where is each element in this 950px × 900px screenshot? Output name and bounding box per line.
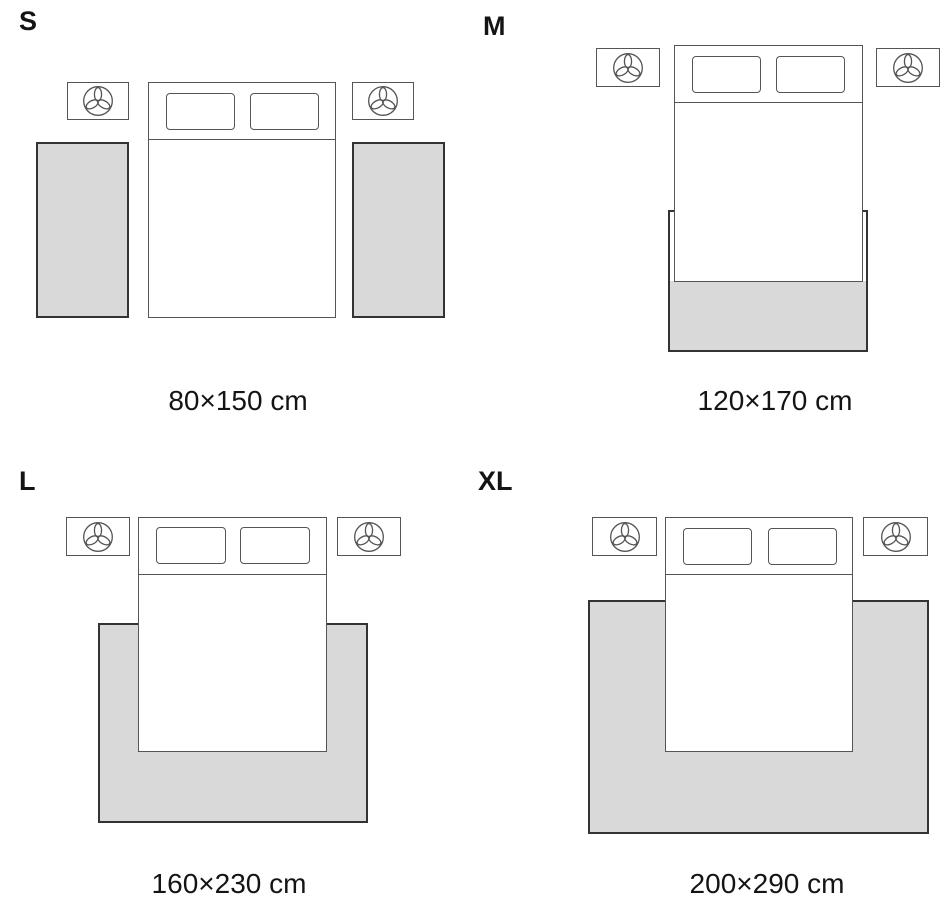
rug-left-runner xyxy=(36,142,129,318)
panel-size-l: L xyxy=(0,450,475,900)
plant-icon xyxy=(353,521,385,553)
dimension-label: 160×230 cm xyxy=(152,869,307,900)
headboard-line xyxy=(138,574,327,575)
size-letter: L xyxy=(19,468,36,495)
dimension-label: 200×290 cm xyxy=(690,869,845,900)
pillow-left xyxy=(156,527,226,564)
bed xyxy=(148,82,336,318)
size-letter: M xyxy=(483,13,506,40)
plant-icon xyxy=(82,521,114,553)
headboard-line xyxy=(148,139,336,140)
plant-icon xyxy=(367,85,399,117)
nightstand-right xyxy=(876,48,940,87)
rug-size-guide: S xyxy=(0,0,950,900)
plant-icon xyxy=(892,52,924,84)
nightstand-left xyxy=(596,48,660,87)
bed xyxy=(665,517,853,752)
nightstand-left xyxy=(67,82,129,120)
rug-right-runner xyxy=(352,142,445,318)
nightstand-left xyxy=(592,517,657,556)
pillow-right xyxy=(250,93,319,130)
plant-icon xyxy=(82,85,114,117)
headboard-line xyxy=(665,574,853,575)
panel-size-m: M xyxy=(475,0,950,450)
size-letter: S xyxy=(19,8,37,35)
panel-size-s: S xyxy=(0,0,475,450)
pillow-right xyxy=(768,528,837,565)
plant-icon xyxy=(609,521,641,553)
pillow-right xyxy=(776,56,845,93)
plant-icon xyxy=(612,52,644,84)
nightstand-right xyxy=(352,82,414,120)
panel-size-xl: XL xyxy=(475,450,950,900)
nightstand-left xyxy=(66,517,130,556)
rug-visible-area xyxy=(670,281,866,350)
bed xyxy=(674,45,863,282)
pillow-left xyxy=(683,528,752,565)
pillow-left xyxy=(166,93,235,130)
pillow-right xyxy=(240,527,310,564)
plant-icon xyxy=(880,521,912,553)
nightstand-right xyxy=(337,517,401,556)
nightstand-right xyxy=(863,517,928,556)
headboard-line xyxy=(674,102,863,103)
size-letter: XL xyxy=(478,468,513,495)
bed xyxy=(138,517,327,752)
pillow-left xyxy=(692,56,761,93)
dimension-label: 80×150 cm xyxy=(168,386,307,417)
dimension-label: 120×170 cm xyxy=(698,386,853,417)
